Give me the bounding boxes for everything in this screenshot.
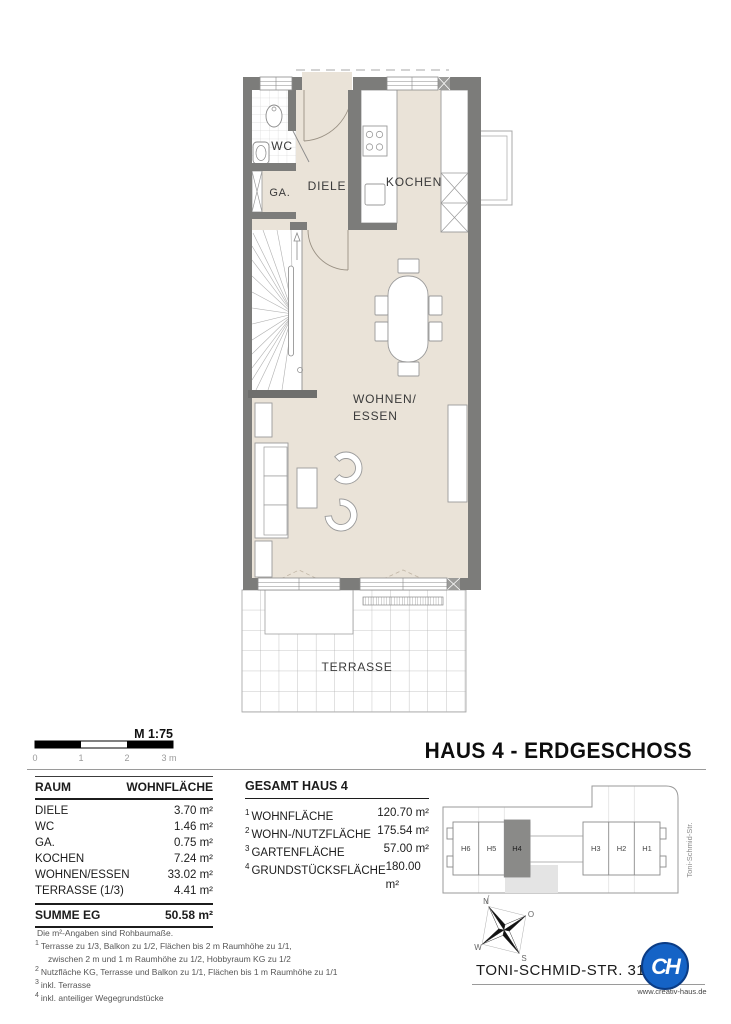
floor-plan-drawing: WC GA. DIELE KOCHEN WOHNEN/ ESSEN TERRAS…: [230, 55, 520, 715]
row-value: 4.41 m²: [174, 883, 213, 899]
footnotes: Die m²-Angaben sind Rohbaumaße. 1Terrass…: [35, 924, 385, 1002]
house-label-h3: H3: [591, 844, 601, 853]
area-table: RAUM WOHNFLÄCHE DIELE 3.70 m² WC 1.46 m²…: [35, 776, 213, 928]
row-value: 180.00 m²: [386, 858, 429, 876]
house-label-h5: H5: [487, 844, 497, 853]
scale-tick: 3 m: [161, 753, 176, 763]
row-label: WOHNEN/ESSEN: [35, 867, 130, 883]
wohnen-label-line1: WOHNEN/: [353, 392, 417, 406]
house-labels: H6 H5 H4 H3 H2 H1: [461, 844, 652, 853]
footnote-line: 3inkl. Terrasse: [35, 976, 385, 989]
terrasse-label: TERRASSE: [321, 660, 392, 674]
footnote-line: zwischen 2 m und 1 m Raumhöhe zu 1/2, Ho…: [35, 950, 385, 963]
table-row: TERRASSE (1/3) 4.41 m²: [35, 883, 213, 899]
footnote-marker: 2: [245, 826, 249, 835]
footnote-line: 2Nutzfläche KG, Terrasse und Balkon zu 1…: [35, 963, 385, 976]
row-connectors: [530, 836, 583, 862]
sideboard: [255, 403, 272, 437]
house-label-h6: H6: [461, 844, 471, 853]
house-label-h4: H4: [512, 844, 522, 853]
terrace-step: [265, 590, 353, 634]
dining-chair: [375, 322, 388, 341]
table-row: GA. 0.75 m²: [35, 835, 213, 851]
dining-chair: [398, 259, 419, 273]
row-value: 1.46 m²: [174, 819, 213, 835]
dining-chair: [429, 296, 442, 315]
scale-bar: M 1:75 0 1 2 3 m: [27, 718, 187, 766]
diele-label: DIELE: [308, 179, 347, 193]
dining-chair: [375, 296, 388, 315]
totals-block: GESAMT HAUS 4 1WOHNFLÄCHE 120.70 m² 2WOH…: [245, 779, 429, 876]
scale-tick: 2: [124, 753, 129, 763]
footnote-line: Die m²-Angaben sind Rohbaumaße.: [35, 924, 385, 937]
row-value: 33.02 m²: [168, 867, 213, 883]
row-value: 57.00 m²: [384, 840, 429, 858]
company-logo: CH: [638, 940, 692, 994]
scale-tick: 1: [78, 753, 83, 763]
row-value: 7.24 m²: [174, 851, 213, 867]
tall-cabinets: [441, 90, 468, 232]
dining-chair: [429, 322, 442, 341]
footnote-marker: 1: [245, 808, 249, 817]
row-label: GA.: [35, 835, 55, 851]
row-value: 120.70 m²: [377, 804, 429, 822]
terrace: [242, 590, 466, 712]
totals-row: 4GRUNDSTÜCKSFLÄCHE 180.00 m²: [245, 858, 429, 876]
totals-row: 3GARTENFLÄCHE 57.00 m²: [245, 840, 429, 858]
wc-label: WC: [271, 139, 293, 153]
totals-title: GESAMT HAUS 4: [245, 779, 429, 799]
table-row: WOHNEN/ESSEN 33.02 m²: [35, 867, 213, 883]
street-label: Toni-Schmid-Str.: [685, 822, 694, 877]
row-label: TERRASSE (1/3): [35, 883, 124, 899]
col-area: WOHNFLÄCHE: [126, 780, 213, 794]
kochen-label: KOCHEN: [386, 175, 442, 189]
side-table: [255, 541, 272, 577]
scale-label: M 1:75: [134, 727, 173, 741]
row-label: GRUNDSTÜCKSFLÄCHE: [251, 865, 385, 877]
dining-chair: [398, 362, 419, 376]
floorplan-sheet: WC GA. DIELE KOCHEN WOHNEN/ ESSEN TERRAS…: [0, 0, 731, 1024]
footnote-line: 4inkl. anteiliger Wegegrundstücke: [35, 989, 385, 1002]
staircase: [252, 222, 303, 390]
entry-niche: [302, 72, 352, 90]
wardrobe-icon: [252, 171, 262, 212]
footnote-marker: 3: [245, 844, 249, 853]
row-label: DIELE: [35, 803, 68, 819]
shelf: [448, 405, 467, 502]
scale-ticks: 0 1 2 3 m: [32, 753, 176, 763]
ga-label: GA.: [269, 187, 290, 199]
row-label: WC: [35, 819, 54, 835]
balcony-outline: [481, 131, 512, 205]
row-value: 175.54 m²: [377, 822, 429, 840]
house-label-h1: H1: [642, 844, 652, 853]
footnote-line: 1Terrasse zu 1/3, Balkon zu 1/2, Flächen…: [35, 937, 385, 950]
totals-row: 2WOHN-/NUTZFLÄCHE 175.54 m²: [245, 822, 429, 840]
dining-table: [388, 276, 428, 362]
logo-url: www.creativ-haus.de: [632, 987, 712, 996]
kitchen-sink-icon: [365, 184, 385, 205]
total-value: 50.58 m²: [165, 905, 213, 926]
table-row: KOCHEN 7.24 m²: [35, 851, 213, 867]
logo-monogram: CH: [651, 954, 682, 979]
row-label: KOCHEN: [35, 851, 84, 867]
toilet-icon: [266, 105, 282, 127]
row-value: 0.75 m²: [174, 835, 213, 851]
area-table-header: RAUM WOHNFLÄCHE: [35, 776, 213, 800]
site-plan: H6 H5 H4 H3 H2 H1 Toni-Schmid-Str.: [440, 775, 720, 910]
compass-rose: N O W S: [450, 893, 560, 965]
scale-tick: 0: [32, 753, 37, 763]
stove-icon: [363, 126, 387, 156]
compass-n: N: [483, 897, 489, 906]
compass-w: W: [474, 943, 482, 952]
house-label-h2: H2: [617, 844, 627, 853]
wohnen-label-line2: ESSEN: [353, 409, 398, 423]
totals-row: 1WOHNFLÄCHE 120.70 m²: [245, 804, 429, 822]
coffee-table: [297, 468, 317, 508]
table-row: DIELE 3.70 m²: [35, 803, 213, 819]
compass-o: O: [528, 910, 534, 919]
divider-line: [27, 769, 706, 770]
col-room: RAUM: [35, 780, 71, 794]
footnote-marker: 4: [245, 862, 249, 871]
page-title: HAUS 4 - ERDGESCHOSS: [396, 738, 692, 764]
row-value: 3.70 m²: [174, 803, 213, 819]
stair-handrail: [289, 266, 294, 356]
door-mat: [363, 597, 443, 605]
table-row: WC 1.46 m²: [35, 819, 213, 835]
total-label: SUMME EG: [35, 905, 100, 926]
